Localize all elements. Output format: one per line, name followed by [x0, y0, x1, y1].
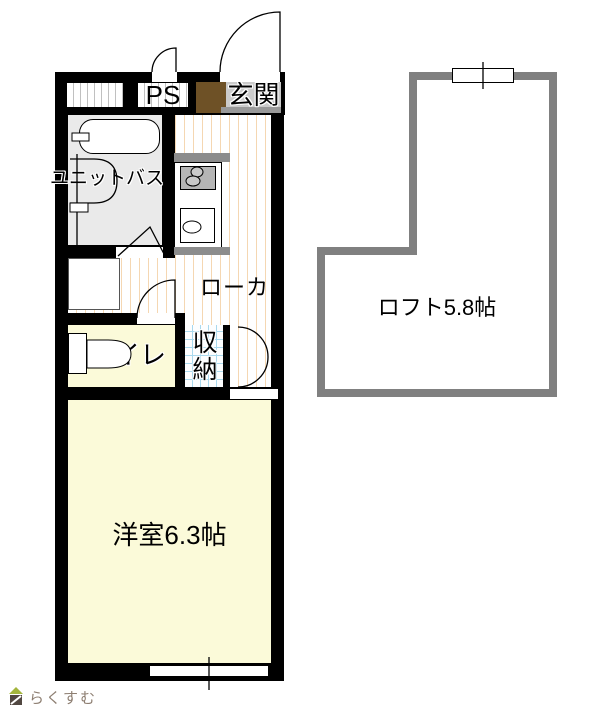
- floor-plan: PS 玄関 ユニットバス ローカ トイレ 収納 洋室6.3帖 ロフト5.8帖: [0, 0, 602, 714]
- western-room-label: 洋室6.3帖: [68, 522, 271, 548]
- storage-door-strip: [230, 325, 238, 387]
- ps-door-swing: [152, 48, 176, 72]
- ps-door-threshold: [152, 72, 177, 82]
- shaft-box: [67, 83, 123, 107]
- sink: [180, 208, 215, 243]
- stove: [180, 166, 216, 190]
- ps-room: PS: [138, 83, 188, 107]
- house-icon: [8, 686, 24, 706]
- house-roof-shape: [9, 687, 23, 694]
- laundry-space: [68, 258, 120, 310]
- wall-storage-right: [223, 325, 230, 387]
- toilet-tank: [68, 333, 87, 374]
- kitchen-counter-top: [174, 153, 230, 162]
- entrance-label: 玄関: [227, 82, 279, 108]
- room-window: [150, 666, 268, 676]
- entrance-door-swing: [220, 12, 280, 72]
- ps-label: PS: [146, 82, 181, 108]
- unit-bath-label: ユニットバス: [50, 169, 164, 188]
- bathtub: [79, 119, 160, 154]
- wall-right: [271, 72, 284, 681]
- wall-left: [55, 72, 68, 681]
- loft-wall-left-lower: [317, 247, 325, 397]
- corridor-label: ローカ: [200, 277, 269, 299]
- wall-storage-left: [175, 313, 185, 397]
- room-door-threshold: [230, 389, 278, 399]
- brand-logo: らくすむ: [8, 686, 97, 706]
- loft-wall-right: [549, 72, 557, 397]
- storage-label: 収納: [190, 329, 215, 383]
- brand-name: らくすむ: [29, 691, 97, 706]
- loft-window: [452, 68, 514, 83]
- entrance-room: 玄関: [226, 82, 281, 107]
- loft-label: ロフト5.8帖: [317, 297, 557, 319]
- bath-door-threshold: [116, 247, 163, 258]
- kitchen-counter-bottom: [174, 247, 230, 255]
- loft-wall-left-upper: [409, 72, 417, 255]
- toilet-door-threshold: [137, 313, 175, 324]
- toilet-label: トイレ: [88, 342, 166, 368]
- loft-wall-notch: [317, 247, 417, 255]
- loft-wall-bottom: [317, 389, 557, 397]
- entrance-door-threshold: [220, 70, 280, 82]
